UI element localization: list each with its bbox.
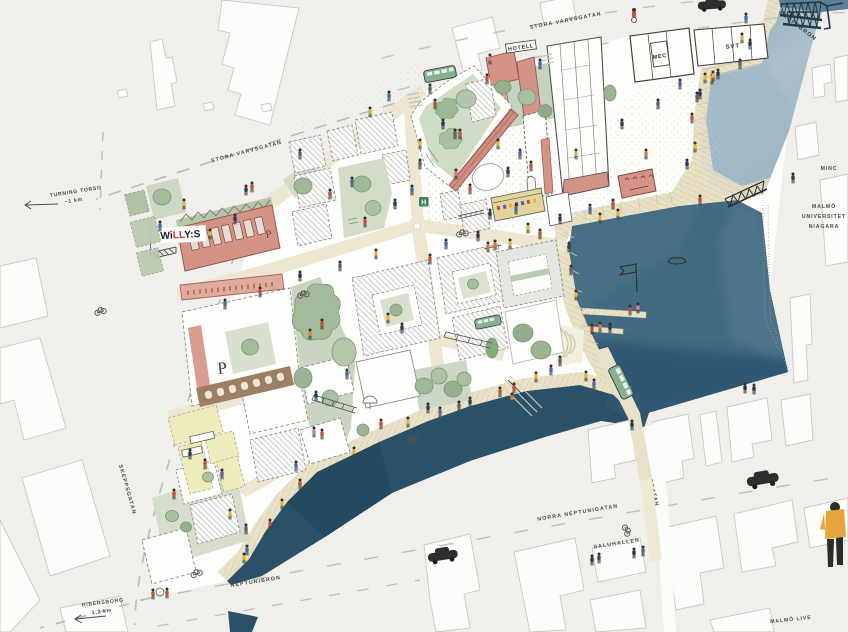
svg-text:WiLLY:S: WiLLY:S <box>160 229 201 242</box>
svg-text:MINC: MINC <box>821 166 838 172</box>
svg-text:H: H <box>421 200 426 207</box>
svg-text:MALMÖ: MALMÖ <box>812 203 836 210</box>
svg-text:NIAGARA: NIAGARA <box>809 224 840 230</box>
svg-text:P: P <box>216 358 227 378</box>
svg-text:UNIVERSITET: UNIVERSITET <box>802 214 846 220</box>
